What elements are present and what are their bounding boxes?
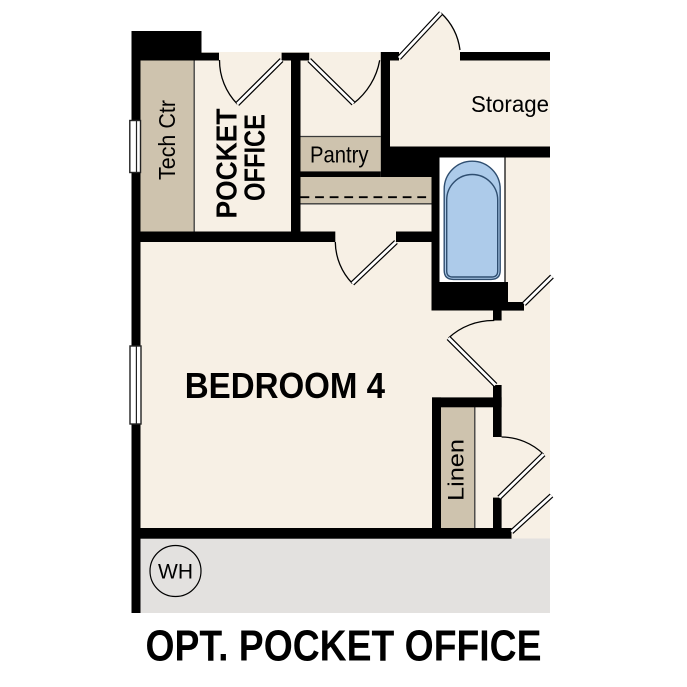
svg-text:Pantry: Pantry [310, 142, 369, 168]
svg-text:OFFICE: OFFICE [240, 114, 272, 201]
svg-text:OPT. POCKET OFFICE: OPT. POCKET OFFICE [146, 622, 542, 671]
svg-text:BEDROOM 4: BEDROOM 4 [185, 365, 386, 406]
svg-text:Storage: Storage [471, 91, 549, 117]
svg-text:Tech Ctr: Tech Ctr [154, 100, 180, 180]
svg-text:WH: WH [158, 560, 193, 583]
svg-text:Linen: Linen [444, 439, 469, 501]
